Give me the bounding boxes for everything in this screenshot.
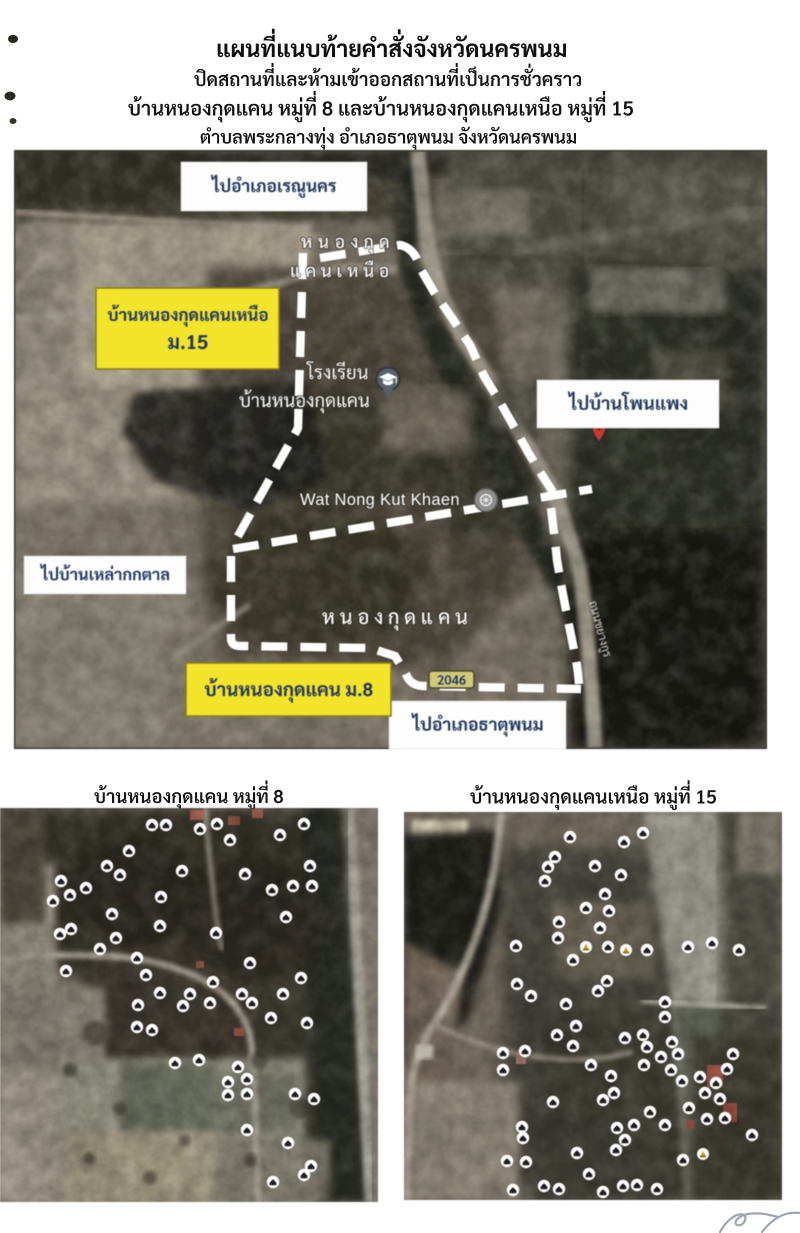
- svg-text:Wat Nong Kut Khaen: Wat Nong Kut Khaen: [300, 491, 460, 509]
